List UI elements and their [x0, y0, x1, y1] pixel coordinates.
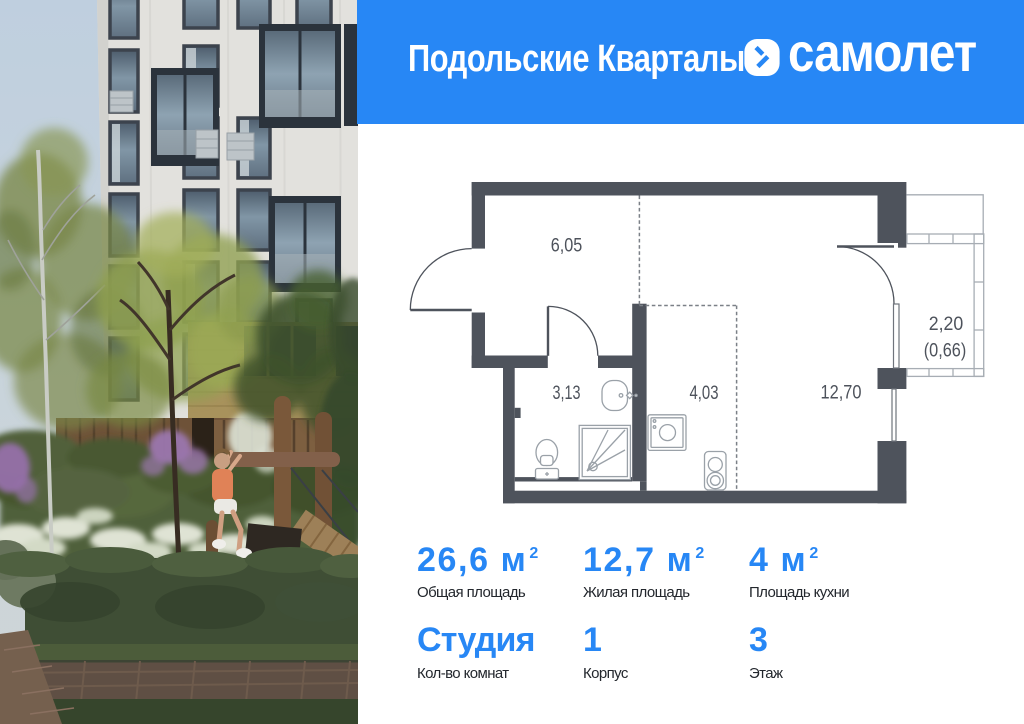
svg-text:2,20: 2,20	[929, 313, 964, 335]
svg-text:(0,66): (0,66)	[924, 340, 967, 362]
svg-text:3,13: 3,13	[553, 382, 581, 404]
svg-text:4,03: 4,03	[690, 382, 719, 404]
svg-text:6,05: 6,05	[551, 235, 583, 257]
svg-text:12,70: 12,70	[821, 382, 862, 404]
